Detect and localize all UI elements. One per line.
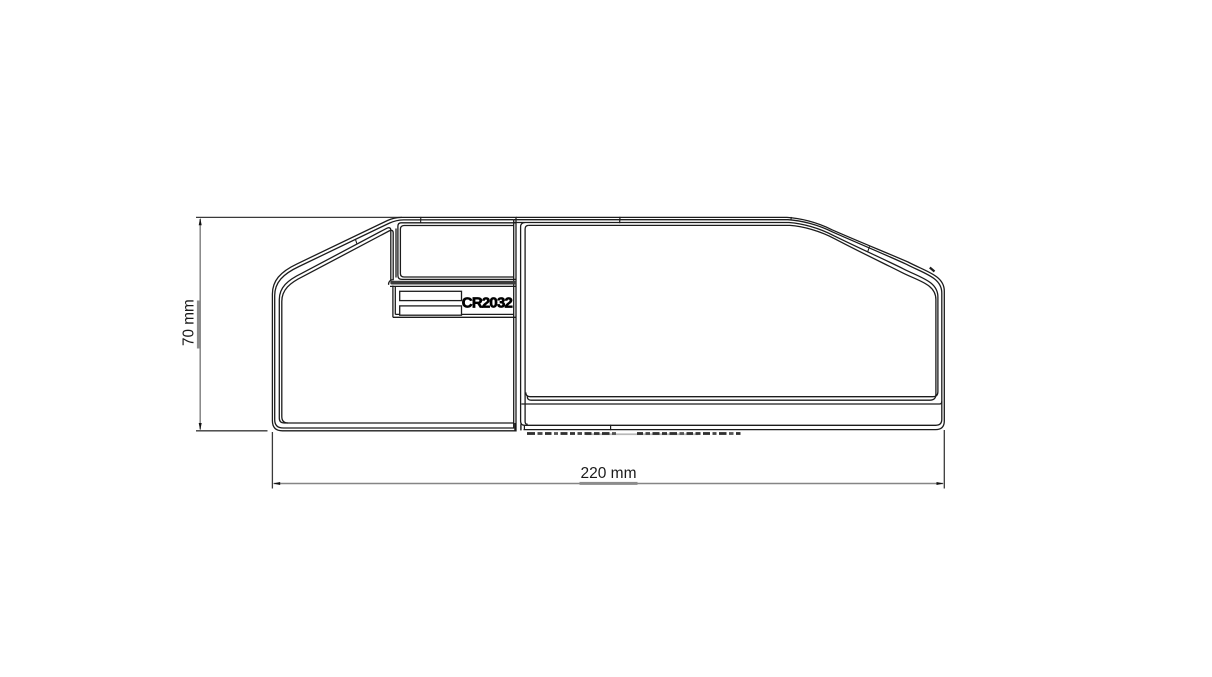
svg-text:70 mm: 70 mm [181, 299, 198, 346]
svg-text:220 mm: 220 mm [581, 465, 637, 482]
svg-text:CR2032: CR2032 [462, 294, 513, 311]
